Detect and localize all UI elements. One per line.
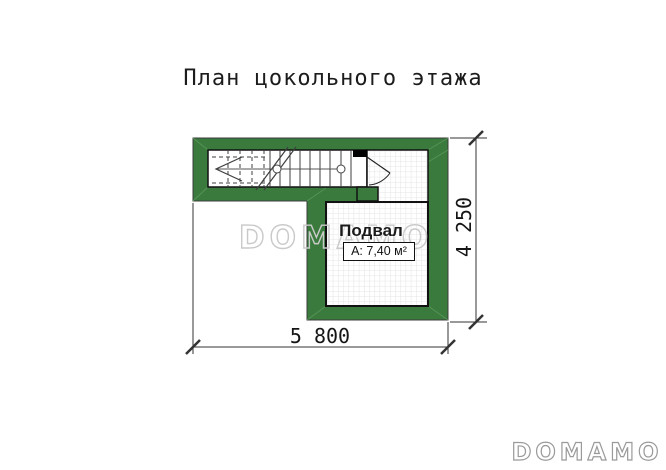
room-name-label: Подвал [311,221,431,241]
wall-stub [357,187,378,201]
floor-plan-page: План цокольного этажа [0,0,666,470]
logo-text: DOMAMO [511,438,662,466]
dim-height-label: 4 250 [452,147,472,307]
door-jamb [353,150,367,157]
room-area-box: А: 7,40 м² [343,242,415,261]
dim-width-label: 5 800 [253,324,387,348]
